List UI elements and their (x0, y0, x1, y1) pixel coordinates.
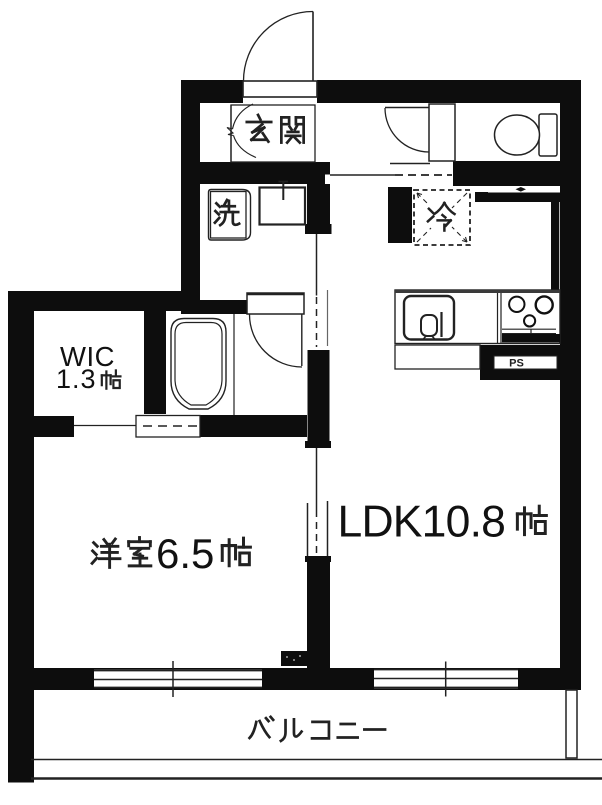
svg-text:1.3: 1.3 (56, 364, 97, 394)
svg-text:6.5: 6.5 (156, 530, 214, 577)
svg-text:LDK10.8: LDK10.8 (338, 498, 506, 547)
svg-text:PS: PS (509, 358, 524, 370)
